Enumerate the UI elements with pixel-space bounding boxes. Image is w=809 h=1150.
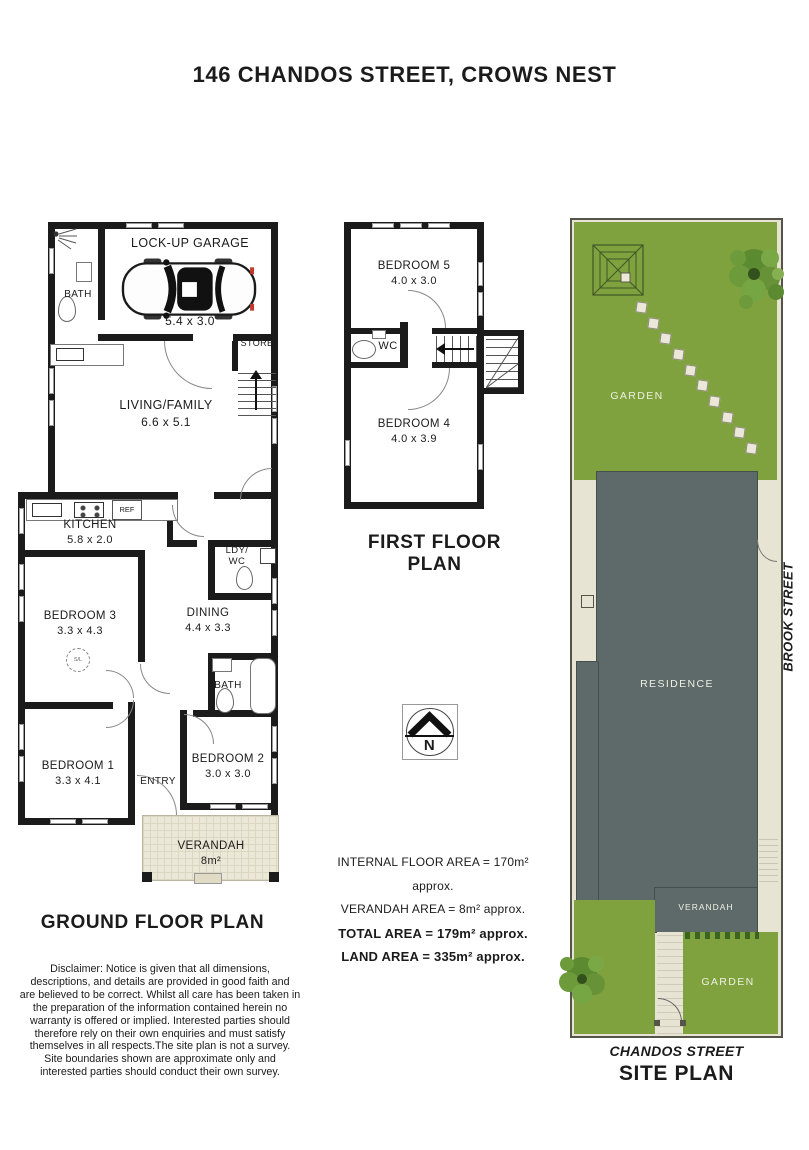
verandah-post bbox=[142, 872, 152, 882]
verandah-dims: 8m² bbox=[161, 855, 261, 868]
wall bbox=[351, 362, 400, 368]
site-verandah-label: VERANDAH bbox=[655, 902, 757, 912]
window bbox=[19, 724, 24, 750]
wall bbox=[18, 492, 178, 499]
basin-icon bbox=[212, 658, 232, 672]
wall bbox=[98, 222, 105, 320]
site-plan: GARDEN RESIDENCE VERANDAH GARDEN bbox=[570, 218, 783, 1038]
window bbox=[272, 418, 277, 444]
bedroom1-dims: 3.3 x 4.1 bbox=[28, 775, 128, 788]
cistern-icon bbox=[372, 330, 386, 339]
bath-upper-label: BATH bbox=[58, 289, 98, 301]
wall bbox=[208, 593, 278, 600]
store-label: STORE bbox=[238, 338, 276, 349]
window bbox=[478, 444, 483, 470]
bedroom5-label: BEDROOM 5 bbox=[364, 260, 464, 274]
wall bbox=[344, 502, 484, 509]
site-plan-title: SITE PLAN bbox=[570, 1062, 783, 1086]
total-area-line: TOTAL AREA = 179m² approx. bbox=[318, 922, 548, 946]
stepping-stone bbox=[684, 364, 696, 376]
disclaimer-text: Disclaimer: Notice is given that all dim… bbox=[16, 963, 304, 1079]
bedroom4-dims: 4.0 x 3.9 bbox=[364, 433, 464, 446]
stair-arrow-line bbox=[255, 378, 257, 410]
bath-lower-label: BATH bbox=[203, 680, 253, 692]
wall bbox=[128, 702, 135, 825]
entry-label: ENTRY bbox=[136, 776, 180, 788]
door-arc bbox=[408, 290, 446, 328]
window bbox=[49, 400, 54, 426]
verandah-post bbox=[269, 872, 279, 882]
stepping-stone bbox=[721, 411, 733, 423]
window bbox=[19, 508, 24, 534]
side-path-steps bbox=[759, 838, 778, 882]
wc-label: WC bbox=[374, 340, 402, 353]
compass: N bbox=[402, 704, 458, 760]
brook-street-label: BROOK STREET bbox=[781, 562, 796, 671]
door-arc bbox=[184, 714, 214, 744]
window bbox=[272, 578, 277, 604]
wall bbox=[138, 550, 145, 662]
garden-bottom-label: GARDEN bbox=[693, 976, 763, 988]
kitchen-dims: 5.8 x 2.0 bbox=[40, 534, 140, 547]
first-floor-plan-title: FIRST FLOOR PLAN bbox=[342, 532, 527, 576]
land-area-line: LAND AREA = 335m² approx. bbox=[318, 945, 548, 969]
bedroom1-label: BEDROOM 1 bbox=[28, 760, 128, 774]
window bbox=[50, 819, 76, 824]
sink-icon bbox=[56, 348, 84, 361]
door-arc bbox=[408, 368, 450, 410]
kitchen-label: KITCHEN bbox=[40, 519, 140, 533]
washer-icon bbox=[260, 548, 276, 564]
north-label: N bbox=[403, 737, 456, 755]
stair-arrow-icon bbox=[436, 343, 445, 355]
verandah-step bbox=[194, 873, 222, 884]
living-label: LIVING/FAMILY bbox=[106, 398, 226, 413]
toilet-icon bbox=[352, 340, 376, 359]
living-dims: 6.6 x 5.1 bbox=[106, 415, 226, 429]
bedroom5-dims: 4.0 x 3.0 bbox=[364, 275, 464, 288]
floorplan-sheet: 146 CHANDOS STREET, CROWS NEST bbox=[0, 0, 809, 1150]
tree-icon bbox=[554, 944, 614, 1016]
window bbox=[82, 819, 108, 824]
verandah-area-line: VERANDAH AREA = 8m² approx. bbox=[318, 898, 548, 922]
wall bbox=[18, 818, 135, 825]
internal-area-line: INTERNAL FLOOR AREA = 170m² approx. bbox=[318, 851, 548, 898]
side-gate-arc bbox=[757, 540, 777, 562]
stepping-stone bbox=[635, 301, 647, 313]
wall bbox=[484, 388, 524, 394]
window bbox=[126, 223, 152, 228]
verandah-label: VERANDAH bbox=[161, 840, 261, 854]
gate-post bbox=[680, 1020, 686, 1026]
stepping-stone bbox=[696, 379, 708, 391]
stepping-stone bbox=[659, 332, 671, 344]
bedroom2-label: BEDROOM 2 bbox=[178, 753, 278, 767]
dining-label: DINING bbox=[158, 607, 258, 621]
stepping-stone bbox=[733, 426, 745, 438]
bedroom4-label: BEDROOM 4 bbox=[364, 418, 464, 432]
door-arc bbox=[240, 468, 272, 500]
window bbox=[210, 804, 236, 809]
bathtub-icon bbox=[250, 658, 276, 714]
stair-arrow-icon bbox=[250, 370, 262, 379]
window bbox=[49, 368, 54, 394]
stove-icon bbox=[74, 502, 104, 518]
car-top-view bbox=[120, 256, 258, 322]
area-summary: INTERNAL FLOOR AREA = 170m² approx. VERA… bbox=[318, 851, 548, 969]
fridge-box: REF bbox=[112, 500, 142, 520]
door-arc bbox=[140, 664, 170, 694]
residence-left-notch bbox=[581, 595, 594, 608]
window bbox=[400, 223, 422, 228]
page-title: 146 CHANDOS STREET, CROWS NEST bbox=[0, 62, 809, 88]
stepping-stone bbox=[708, 395, 720, 407]
ground-floor-plan-title: GROUND FLOOR PLAN bbox=[40, 912, 265, 934]
wall bbox=[167, 540, 197, 547]
window bbox=[272, 726, 277, 752]
wall bbox=[518, 330, 524, 394]
garage-dims: 5.4 x 3.0 bbox=[130, 314, 250, 328]
sink-icon bbox=[32, 503, 62, 517]
wall bbox=[432, 328, 477, 334]
window bbox=[19, 564, 24, 590]
chandos-street-label: CHANDOS STREET bbox=[570, 1043, 783, 1059]
ldy-wc-label: LDY/ WC bbox=[217, 545, 257, 568]
bedroom2-dims: 3.0 x 3.0 bbox=[178, 768, 278, 781]
window bbox=[345, 440, 350, 466]
garden-top-label: GARDEN bbox=[602, 390, 672, 402]
north-arrow-icon bbox=[403, 705, 456, 739]
door-arc bbox=[106, 670, 134, 698]
window bbox=[272, 610, 277, 636]
basin-icon bbox=[76, 262, 92, 282]
bedroom3-label: BEDROOM 3 bbox=[30, 610, 130, 624]
window bbox=[478, 292, 483, 316]
gate-post bbox=[654, 1020, 660, 1026]
shower-icon bbox=[51, 227, 79, 255]
stepping-stone bbox=[647, 317, 659, 329]
residence-block-extension bbox=[577, 662, 598, 900]
window bbox=[19, 756, 24, 782]
window bbox=[372, 223, 394, 228]
ground-floor-plan: REF S/L LOCK-UP GARAGE 5.4 x 3.0 BATH ST… bbox=[14, 218, 294, 893]
window bbox=[428, 223, 450, 228]
dining-dims: 4.4 x 3.3 bbox=[158, 622, 258, 635]
garage-label: LOCK-UP GARAGE bbox=[120, 236, 260, 251]
stepping-stone bbox=[745, 442, 757, 454]
residence-label: RESIDENCE bbox=[597, 678, 757, 690]
door-arc bbox=[164, 341, 212, 389]
wall bbox=[18, 550, 138, 557]
door-arc bbox=[172, 505, 204, 537]
gazebo-icon bbox=[592, 244, 644, 296]
ref-label: REF bbox=[113, 505, 141, 514]
stair-arrow-line bbox=[444, 348, 474, 350]
window bbox=[158, 223, 184, 228]
toilet-icon bbox=[236, 566, 253, 590]
first-floor-plan: BEDROOM 5 4.0 x 3.0 WC BEDROOM 4 4.0 x 3… bbox=[342, 218, 532, 518]
tree-icon bbox=[724, 236, 788, 320]
wall bbox=[208, 540, 215, 600]
skylight-marker: S/L bbox=[66, 648, 90, 672]
hedge-row bbox=[685, 932, 759, 939]
wall bbox=[18, 702, 113, 709]
window bbox=[478, 262, 483, 286]
wall bbox=[98, 334, 193, 341]
stepping-stone bbox=[672, 348, 684, 360]
window bbox=[242, 804, 268, 809]
window bbox=[19, 596, 24, 622]
stair-winder-lines bbox=[486, 336, 518, 388]
bedroom3-dims: 3.3 x 4.3 bbox=[30, 625, 130, 638]
